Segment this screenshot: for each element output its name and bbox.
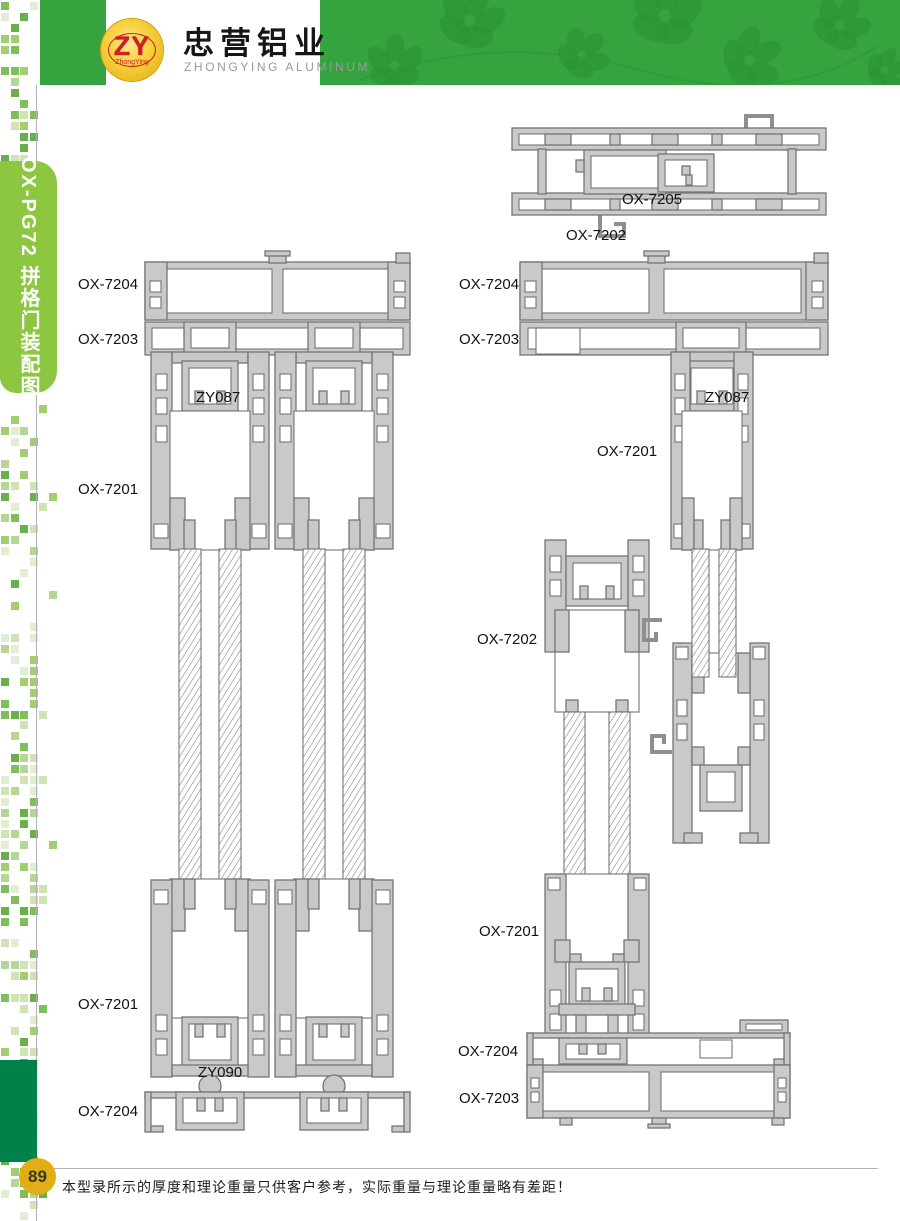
footer-note: 本型录所示的厚度和理论重量只供客户参考，实际重量与理论重量略有差距！: [62, 1177, 572, 1197]
profile-label-ox-7203: OX-7203: [459, 1090, 519, 1107]
profile-label-ox-7201: OX-7201: [78, 481, 138, 498]
profile-label-ox-7204: OX-7204: [458, 1043, 518, 1060]
deep-green-block: [0, 1060, 37, 1162]
profile-label-ox-7204: OX-7204: [459, 276, 519, 293]
profile-label-zy087: ZY087: [196, 389, 240, 406]
company-logo: ZY ZhongYing: [101, 19, 163, 81]
diagram-labels: OX-7205OX-7202OX-7204OX-7203ZY087OX-7201…: [0, 0, 900, 1221]
profile-label-ox-7201: OX-7201: [479, 923, 539, 940]
flower-pattern: [320, 0, 900, 85]
company-name-en: ZHONGYING ALUMINUM: [184, 60, 370, 74]
logo-ring: [108, 33, 156, 67]
company-name-cn: 忠营铝业: [183, 18, 323, 63]
profile-label-zy090: ZY090: [198, 1064, 242, 1081]
profile-label-ox-7201: OX-7201: [78, 996, 138, 1013]
profile-label-ox-7203: OX-7203: [78, 331, 138, 348]
header-green-right: [320, 0, 900, 85]
catalog-page: ZY ZhongYing 忠营铝业 ZHONGYING ALUMINUM OX-…: [0, 0, 900, 1221]
profile-label-ox-7202: OX-7202: [566, 227, 626, 244]
profile-label-ox-7202: OX-7202: [477, 631, 537, 648]
profile-label-ox-7204: OX-7204: [78, 1103, 138, 1120]
page-number: 89: [28, 1167, 47, 1187]
profile-label-zy087: ZY087: [705, 389, 749, 406]
series-tab-label: OX-PG72 拼格门装配图: [14, 157, 43, 397]
page-number-badge: 89: [19, 1158, 56, 1195]
profile-label-ox-7201: OX-7201: [597, 443, 657, 460]
profile-label-ox-7203: OX-7203: [459, 331, 519, 348]
header: ZY ZhongYing 忠营铝业 ZHONGYING ALUMINUM: [0, 0, 900, 85]
series-tab: OX-PG72 拼格门装配图: [0, 161, 57, 393]
profile-label-ox-7204: OX-7204: [78, 276, 138, 293]
header-green-left: [40, 0, 106, 85]
profile-label-ox-7205: OX-7205: [622, 191, 682, 208]
